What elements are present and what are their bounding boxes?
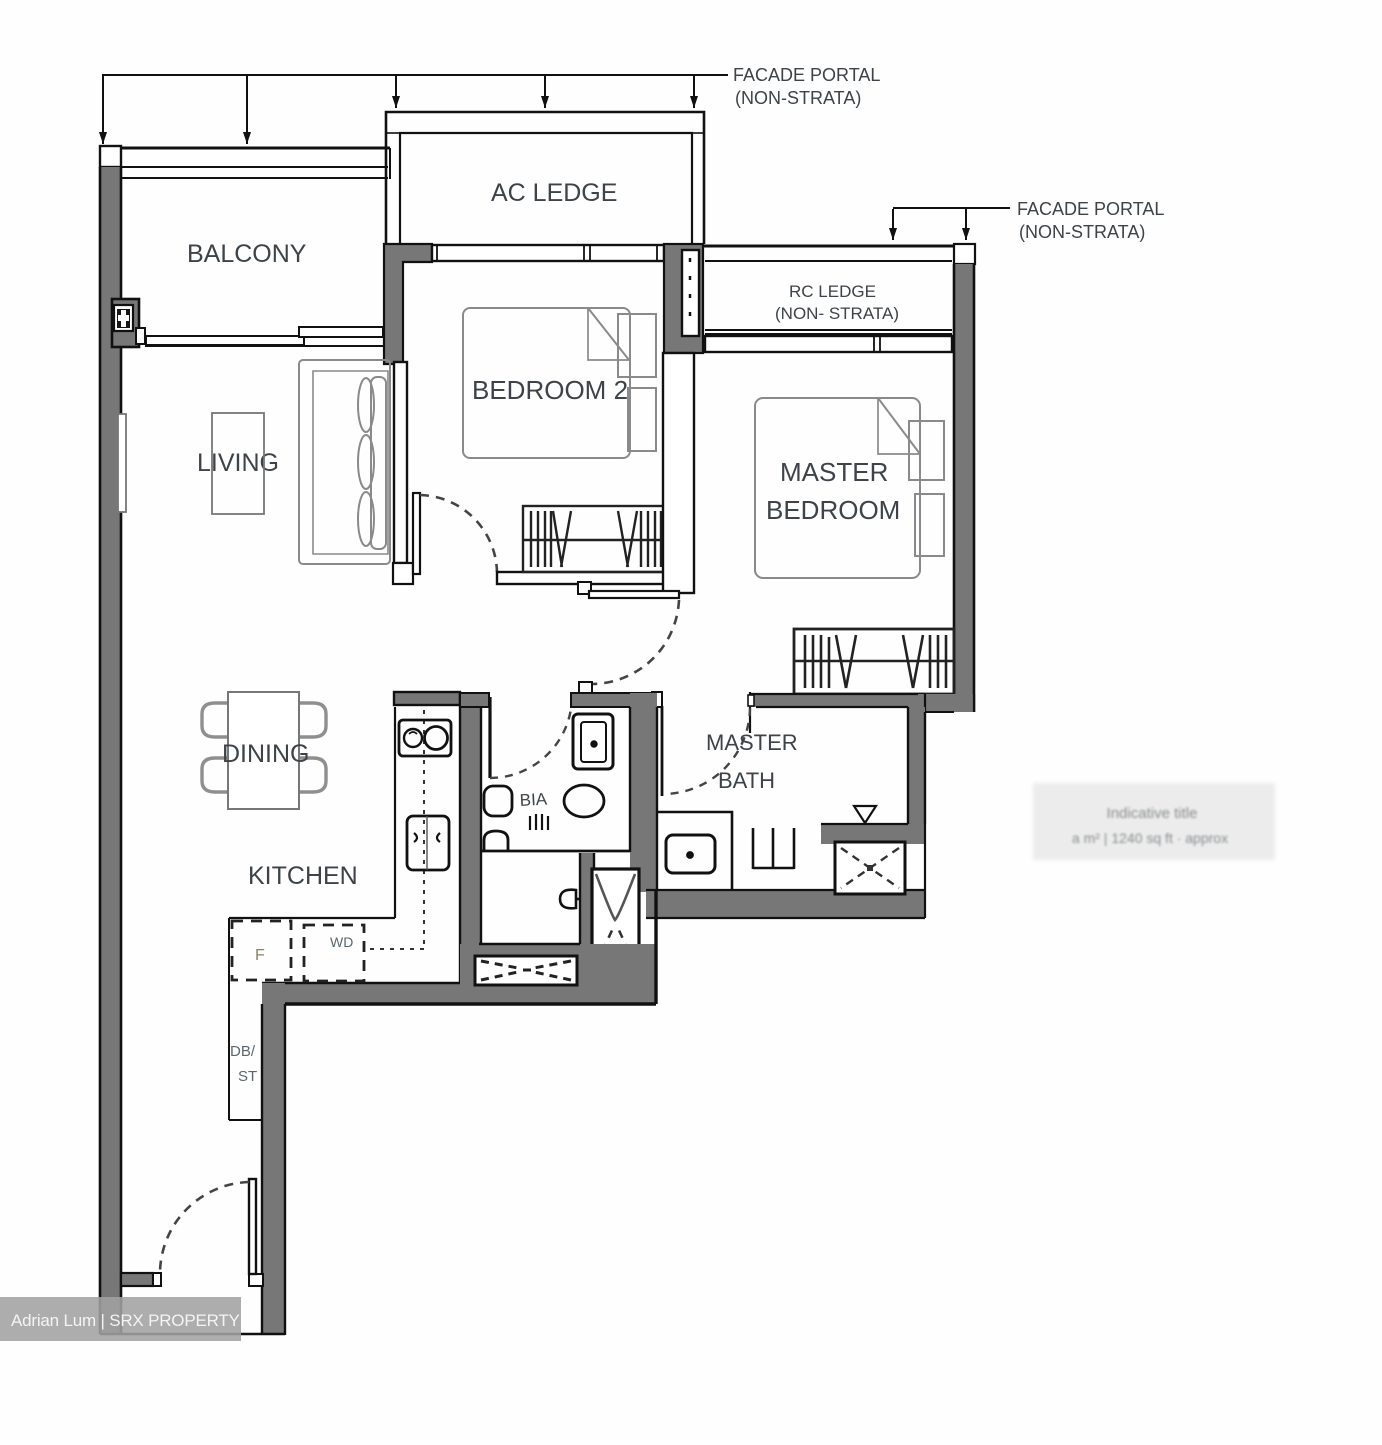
svg-text:BEDROOM 2: BEDROOM 2 (472, 375, 628, 405)
svg-text:(NON- STRATA): (NON- STRATA) (775, 304, 899, 323)
svg-text:(NON-STRATA): (NON-STRATA) (1019, 222, 1145, 242)
svg-text:LIVING: LIVING (197, 449, 279, 477)
svg-text:a m² | 1240 sq ft · approx: a m² | 1240 sq ft · approx (1072, 830, 1228, 846)
svg-text:Indicative title: Indicative title (1107, 805, 1198, 822)
svg-text:Adrian Lum | SRX PROPERTY: Adrian Lum | SRX PROPERTY (11, 1311, 240, 1330)
svg-text:F: F (255, 947, 265, 964)
svg-text:RC LEDGE: RC LEDGE (789, 282, 876, 301)
svg-text:WD: WD (330, 934, 353, 950)
svg-text:(NON-STRATA): (NON-STRATA) (735, 88, 861, 108)
svg-text:BIA: BIA (519, 790, 548, 810)
svg-text:KITCHEN: KITCHEN (248, 862, 358, 890)
svg-text:ST: ST (238, 1068, 257, 1085)
svg-text:FACADE PORTAL: FACADE PORTAL (733, 65, 880, 85)
svg-text:FACADE PORTAL: FACADE PORTAL (1017, 199, 1164, 219)
svg-text:BEDROOM: BEDROOM (766, 495, 900, 525)
svg-text:BATH: BATH (718, 768, 775, 793)
svg-text:DB/: DB/ (230, 1043, 256, 1060)
svg-text:AC LEDGE: AC LEDGE (491, 179, 617, 207)
svg-text:MASTER: MASTER (780, 457, 888, 487)
svg-text:BALCONY: BALCONY (187, 240, 307, 268)
svg-text:MASTER: MASTER (706, 730, 798, 755)
svg-text:DINING: DINING (222, 740, 310, 768)
